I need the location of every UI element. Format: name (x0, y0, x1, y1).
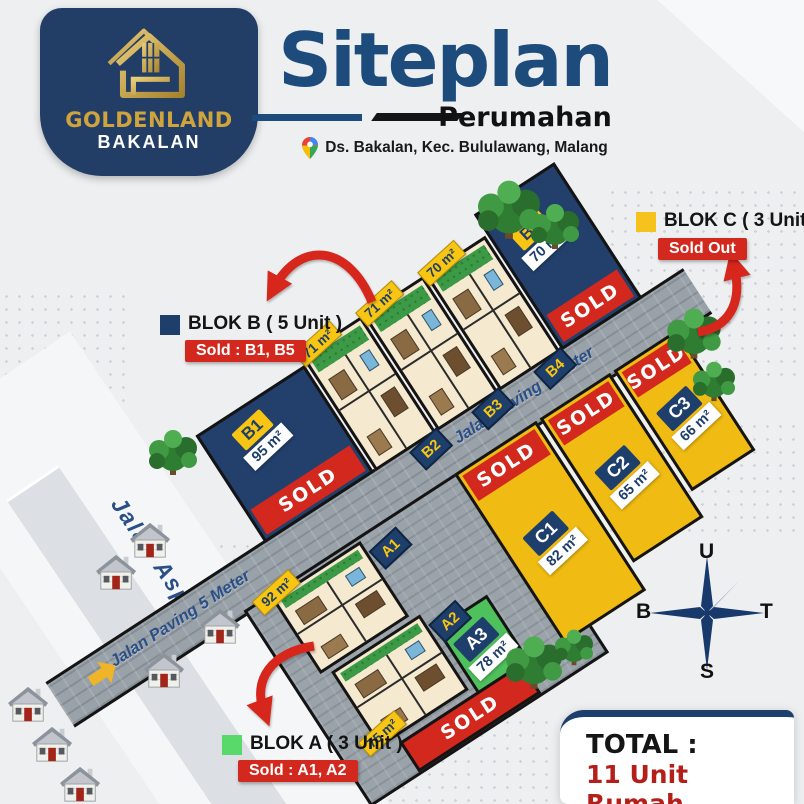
house-icon (6, 684, 52, 724)
brand-name: GOLDENLAND (40, 108, 258, 132)
tree-icon (664, 306, 724, 360)
house-icon (198, 606, 244, 646)
legend-b-badge: Sold : B1, B5 (185, 340, 306, 362)
tree-icon (146, 428, 200, 476)
legend-a-badge: Sold : A1, A2 (238, 760, 358, 782)
total-value: 11 Unit Rumah (586, 760, 794, 804)
page-title: Siteplan (244, 16, 646, 104)
legend-b-swatch (160, 315, 180, 335)
legend-a-swatch (222, 735, 242, 755)
tree-icon (528, 202, 582, 250)
compass-star-icon (642, 548, 772, 678)
compass-south-label: S (700, 660, 714, 684)
legend-b-title: BLOK B ( 5 Unit ) (188, 313, 342, 335)
goldenland-house-icon (97, 18, 201, 106)
house-icon (30, 724, 76, 764)
title-underline (258, 114, 362, 121)
legend-a-title: BLOK A ( 3 Unit ) (250, 733, 403, 755)
legend-c-badge: Sold Out (658, 238, 747, 260)
compass-east-label: T (760, 600, 773, 624)
tree-icon (690, 360, 738, 402)
legend-c-swatch (636, 212, 656, 232)
compass-west-label: B (636, 600, 651, 624)
brand-location: BAKALAN (40, 132, 258, 153)
total-label: TOTAL : (586, 730, 794, 760)
house-icon (142, 650, 188, 690)
legend-c-title: BLOK C ( 3 Unit ) (664, 210, 804, 232)
page-subtitle: Perumahan (430, 102, 620, 133)
compass-rose: U T S B (642, 548, 772, 678)
house-icon (94, 552, 140, 592)
total-box: TOTAL : 11 Unit Rumah (560, 710, 794, 804)
compass-north-label: U (699, 540, 714, 564)
logo-badge: GOLDENLAND BAKALAN (40, 8, 258, 176)
address-row: Ds. Bakalan, Kec. Bululawang, Malang (230, 137, 680, 159)
house-icon (58, 764, 104, 804)
siteplan-poster: Jalan Aspal Jalan Paving 5 Meter Jalan P… (0, 0, 804, 804)
address-text: Ds. Bakalan, Kec. Bululawang, Malang (325, 139, 608, 157)
tree-icon (552, 628, 596, 666)
map-pin-icon (302, 137, 318, 159)
